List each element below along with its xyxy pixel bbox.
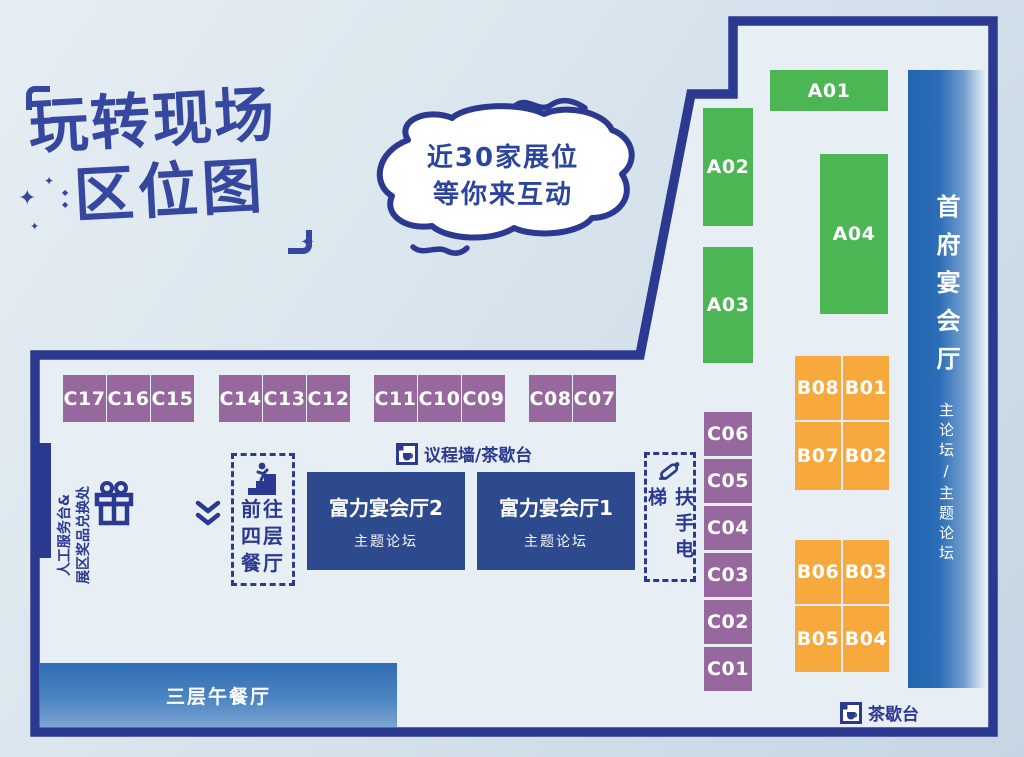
booth-label: C06 (707, 423, 749, 445)
booth-c10: C10 (418, 375, 461, 422)
booth-b04: B04 (843, 606, 889, 672)
double-chevron-down-icon (194, 498, 222, 530)
diamond-icon: ◆ (62, 188, 68, 197)
booth-label: C14 (220, 388, 262, 410)
diamond-icon: ◆ (62, 200, 68, 209)
booth-label: B05 (797, 628, 839, 650)
tea-break-label: 茶歇台 (840, 700, 919, 725)
booth-c15: C15 (151, 375, 194, 422)
hall-forum: 主论坛/主题论坛 (936, 402, 957, 565)
booth-c13: C13 (263, 375, 306, 422)
tea-cup-icon (396, 443, 418, 465)
booth-a02: A02 (703, 108, 753, 226)
booth-label: C01 (707, 658, 749, 680)
hall-forum: 主题论坛 (354, 531, 418, 551)
hall-forum: 主题论坛 (524, 531, 588, 551)
booth-c16: C16 (107, 375, 150, 422)
booth-label: C09 (463, 388, 505, 410)
to-4f-restaurant-box: 前往 四层 餐厅 (231, 453, 295, 586)
to-4f-line2: 四层 (241, 523, 285, 550)
booth-b08: B08 (795, 356, 841, 420)
bubble-text: 近30家展位 等你来互动 (392, 140, 614, 214)
booth-label: C10 (419, 388, 461, 410)
venue-map: 玩转现场 区位图 ✦ ✦ ✦ ✦ ◆ ◆ 近30家展位 等你来互动 A01 A0… (0, 0, 1024, 757)
booth-c14: C14 (219, 375, 262, 422)
booth-label: B03 (845, 561, 887, 583)
booth-label: C16 (108, 388, 150, 410)
booth-label: B08 (797, 377, 839, 399)
booth-c08: C08 (529, 375, 572, 422)
service-line1: 人工服务台& (56, 442, 75, 628)
booth-c02: C02 (704, 600, 752, 644)
sparkle-icon: ✦ (300, 232, 315, 253)
booth-label: C04 (707, 517, 749, 539)
hall-shoufu: 首府宴会厅 主论坛/主题论坛 (908, 70, 985, 688)
booth-b01: B01 (843, 356, 889, 420)
tea-break-text: 茶歇台 (868, 700, 919, 725)
hall-name: 三层午餐厅 (166, 682, 271, 709)
hall-lunch-3f: 三层午餐厅 (40, 663, 397, 727)
tea-cup-icon (840, 702, 862, 724)
booth-a04: A04 (820, 154, 888, 314)
service-desk-tab (39, 443, 51, 558)
bubble-line1: 近30家展位 (392, 140, 614, 177)
hall-fuli-1: 富力宴会厅1 主题论坛 (477, 472, 635, 570)
bubble-line2: 等你来互动 (392, 177, 614, 214)
hall-name: 首府宴会厅 (929, 194, 964, 384)
to-4f-line3: 餐厅 (241, 550, 285, 577)
booth-label: A02 (707, 156, 750, 178)
booth-label: C12 (308, 388, 350, 410)
booth-label: B07 (797, 445, 839, 467)
booth-label: C13 (264, 388, 306, 410)
booth-b02: B02 (843, 422, 889, 490)
booth-c03: C03 (704, 553, 752, 597)
booth-label: C03 (707, 564, 749, 586)
gift-icon (93, 480, 135, 528)
agenda-tea-label: 议程墙/茶歇台 (396, 441, 532, 466)
booth-label: B01 (845, 377, 887, 399)
page-title: 玩转现场 区位图 (26, 76, 333, 234)
to-4f-line1: 前往 (241, 496, 285, 523)
booth-label: C11 (375, 388, 417, 410)
sparkle-icon: ✦ (30, 220, 39, 233)
hall-name: 富力宴会厅1 (499, 492, 613, 521)
hall-name: 富力宴会厅2 (329, 492, 443, 521)
service-desk-label: 人工服务台& 展区奖品兑换处 (56, 442, 94, 628)
booth-label: C15 (152, 388, 194, 410)
hall-fuli-2: 富力宴会厅2 主题论坛 (307, 472, 465, 570)
booth-label: C08 (530, 388, 572, 410)
sparkle-icon: ✦ (44, 174, 54, 188)
booth-c17: C17 (63, 375, 106, 422)
booth-label: A01 (808, 80, 851, 102)
booth-label: B06 (797, 561, 839, 583)
booth-label: A04 (833, 223, 876, 245)
booth-a03: A03 (703, 247, 753, 363)
booth-label: B02 (845, 445, 887, 467)
agenda-tea-text: 议程墙/茶歇台 (424, 441, 532, 466)
booth-b05: B05 (795, 606, 841, 672)
booth-c09: C09 (462, 375, 505, 422)
escalator-box: 扶手电梯 (644, 452, 696, 582)
booth-c05: C05 (704, 459, 752, 503)
booth-label: A03 (707, 294, 750, 316)
booth-c11: C11 (374, 375, 417, 422)
booth-label: C07 (574, 388, 616, 410)
booth-c07: C07 (573, 375, 616, 422)
booth-label: B04 (845, 628, 887, 650)
booth-c12: C12 (307, 375, 350, 422)
booth-a01: A01 (770, 70, 888, 111)
booth-b06: B06 (795, 540, 841, 604)
booth-label: C05 (707, 470, 749, 492)
booth-b03: B03 (843, 540, 889, 604)
squiggle-bottom (413, 247, 467, 253)
escalator-icon (656, 460, 684, 483)
booth-c06: C06 (704, 412, 752, 456)
sparkle-icon: ✦ (18, 186, 36, 211)
booth-b07: B07 (795, 422, 841, 490)
stairs-person-icon (246, 462, 280, 496)
booth-label: C17 (64, 388, 106, 410)
booth-c01: C01 (704, 647, 752, 691)
service-line2: 展区奖品兑换处 (75, 442, 94, 628)
booth-c04: C04 (704, 506, 752, 550)
escalator-text: 扶手电梯 (643, 487, 697, 579)
booth-label: C02 (707, 611, 749, 633)
